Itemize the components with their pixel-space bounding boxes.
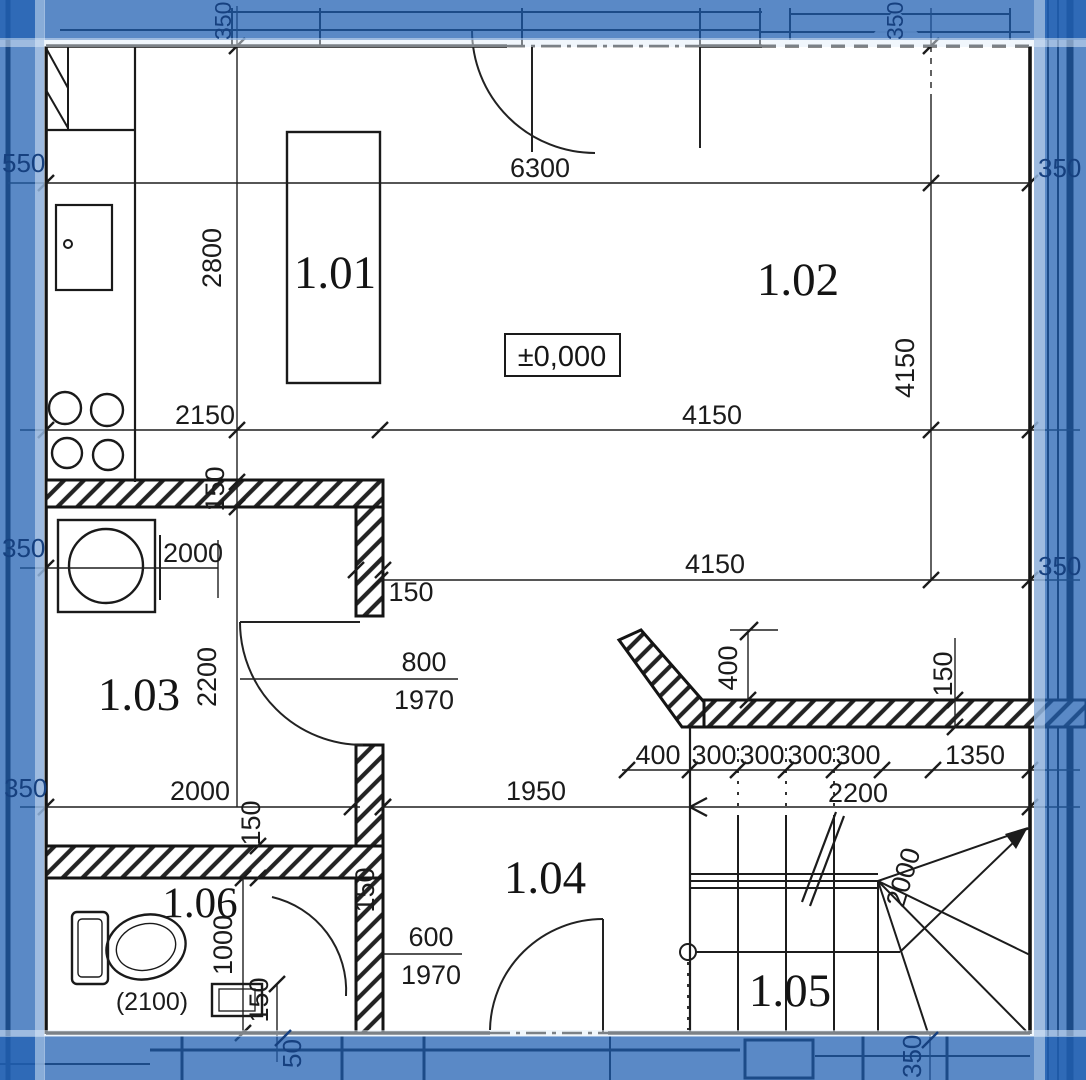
edge-dim-right-mid: 350 [1038, 551, 1081, 581]
dim-150-wall-a: 150 [200, 466, 230, 511]
dim-1000: 1000 [208, 915, 238, 975]
dim-tread-300c: 300 [787, 740, 832, 770]
level-zero-text: ±0,000 [518, 341, 607, 373]
dim-2150: 2150 [175, 400, 235, 430]
dim-600: 600 [408, 922, 453, 952]
dim-tread-300d: 300 [835, 740, 880, 770]
dim-1950: 1950 [506, 776, 566, 806]
room-label-104: 1.04 [504, 852, 586, 904]
dim-800: 800 [401, 647, 446, 677]
edge-dim-left-bottom: 350 [4, 773, 47, 803]
edge-dim-left-mid: 350 [2, 533, 45, 563]
dim-1350: 1350 [945, 740, 1005, 770]
dim-4150-right: 4150 [890, 338, 920, 398]
dim-400: 400 [713, 645, 743, 690]
dim-2800: 2800 [197, 228, 227, 288]
dim-6300: 6300 [510, 153, 570, 183]
edge-dim-right-top: 350 [1038, 153, 1081, 183]
dim-4150-upper: 4150 [682, 400, 742, 430]
room-label-103: 1.03 [98, 669, 180, 721]
dim-150-sink: 150 [244, 977, 274, 1022]
room-label-101: 1.01 [294, 247, 376, 299]
edge-dim-bottom-left: 50 [277, 1039, 307, 1068]
dim-1970-b: 1970 [401, 960, 461, 990]
dim-2000-bottom: 2000 [170, 776, 230, 806]
edge-dim-left-top: 550 [2, 148, 45, 178]
edge-dim-bottom-right: 350 [897, 1035, 927, 1078]
dim-150-stairs: 150 [928, 651, 958, 696]
floor-plan-screenshot: 1.01 1.02 1.03 1.04 1.05 1.06 ±0,000 630… [0, 0, 1086, 1080]
dim-2000-washer: 2000 [163, 538, 223, 568]
dim-150-wall-c: 150 [350, 867, 380, 912]
room-label-105: 1.05 [749, 965, 831, 1017]
dim-150-door103: 150 [388, 577, 433, 607]
dim-2200-left: 2200 [192, 647, 222, 707]
dim-150-wall-d: 150 [236, 800, 266, 845]
edge-dim-top-left: 350 [210, 2, 236, 40]
dim-tread-300b: 300 [739, 740, 784, 770]
room-label-102: 1.02 [757, 254, 839, 306]
frame-top [0, 0, 1086, 40]
dim-2100: (2100) [116, 988, 188, 1016]
floor-plan-canvas: 1.01 1.02 1.03 1.04 1.05 1.06 ±0,000 630… [0, 0, 1086, 1080]
dim-1970-a: 1970 [394, 685, 454, 715]
edge-dim-top-right: 350 [882, 2, 908, 40]
dim-2200-stairs: 2200 [828, 778, 888, 808]
dim-4150-lower: 4150 [685, 549, 745, 579]
dim-tread-400: 400 [635, 740, 680, 770]
dim-tread-300a: 300 [691, 740, 736, 770]
